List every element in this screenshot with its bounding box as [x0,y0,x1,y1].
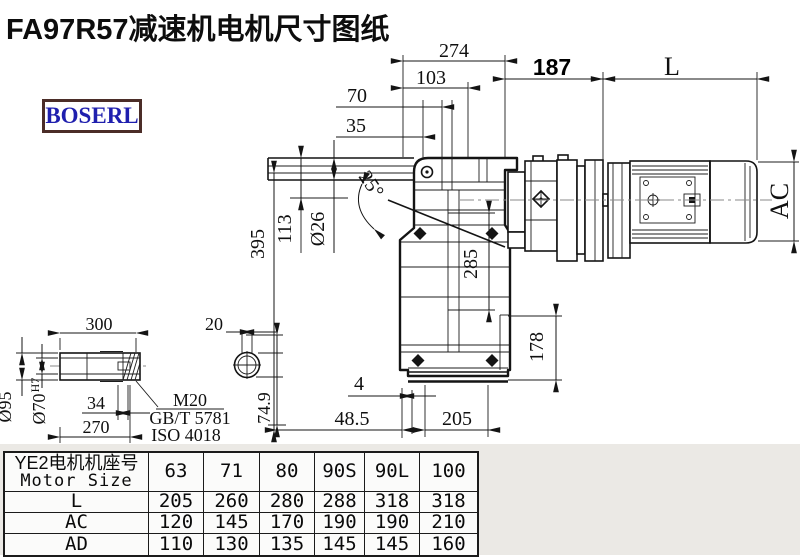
shaft-detail-view [50,352,150,382]
dim-205-label: 205 [442,408,472,430]
cell-AC-80: 170 [260,513,315,534]
motor-side-view [608,161,757,258]
col-header-90s: 90S [315,453,365,492]
cell-AC-90s: 190 [315,513,365,534]
row-label-AD: AD [5,534,149,555]
cell-AD-90l: 145 [365,534,420,555]
gear-unit-front-view [268,100,517,382]
col-header-63: 63 [149,453,204,492]
col-header-100: 100 [420,453,477,492]
row-label-AC: AC [5,513,149,534]
col-header-80: 80 [260,453,315,492]
thread-callout-m20: M20 [173,390,207,410]
boserl-logo: BOSERL [42,99,142,133]
dim-95-label: Ø95 [0,392,15,423]
dim-74-9-label: 74.9 [254,392,274,424]
cell-AD-100: 160 [420,534,477,555]
dim-395-label: 395 [247,229,269,259]
page: { "title": "FA97R57减速机电机尺寸图纸", "logo": "… [0,0,800,555]
dim-103-label: 103 [416,67,446,89]
dim-113-label: 113 [274,214,296,243]
cell-AD-71: 130 [204,534,260,555]
cell-L-80: 280 [260,492,315,513]
cell-AD-80: 135 [260,534,315,555]
dim-AC-label: AC [765,183,794,219]
dim-35-label: 35 [346,115,366,137]
cell-L-63: 205 [149,492,204,513]
dim-20-label: 20 [205,314,223,334]
page-title: FA97R57减速机电机尺寸图纸 [6,6,390,48]
dim-70-label: 70 [347,85,367,107]
cell-L-90l: 318 [365,492,420,513]
input-adapter [508,155,608,261]
table-header-cn: YE2电机机座号 [14,454,138,472]
cell-AD-90s: 145 [315,534,365,555]
thread-callout-iso: ISO 4018 [151,425,221,445]
table-header-en: Motor Size [20,473,132,490]
dim-178-label: 178 [526,332,548,362]
cell-AC-71: 145 [204,513,260,534]
dim-34-label: 34 [87,393,105,413]
dim-L-label: L [664,52,680,81]
dim-274-label: 274 [439,40,469,62]
dim-4-label: 4 [354,373,364,395]
dim-70h7-label: Ø70 [29,394,49,425]
dim-48-5-label: 48.5 [335,408,370,430]
dim-270-label: 270 [83,417,110,437]
cell-AC-90l: 190 [365,513,420,534]
col-header-90l: 90L [365,453,420,492]
bushing-detail-view [233,333,261,379]
cell-L-90s: 288 [315,492,365,513]
cell-AD-63: 110 [149,534,204,555]
dim-300-label: 300 [86,314,113,334]
cell-AC-100: 210 [420,513,477,534]
row-label-L: L [5,492,149,513]
dim-285-label: 285 [460,249,482,279]
cell-L-100: 318 [420,492,477,513]
table-header-motor-size: YE2电机机座号 Motor Size [5,453,149,492]
col-header-71: 71 [204,453,260,492]
dim-187-label: 187 [533,54,571,80]
motor-size-table: YE2电机机座号 Motor Size 63 71 80 90S 90L 100… [3,451,479,557]
cell-AC-63: 120 [149,513,204,534]
cell-L-71: 260 [204,492,260,513]
dim-26-label: Ø26 [307,212,329,246]
dim-70h7-tolerance: H7 [28,378,42,393]
